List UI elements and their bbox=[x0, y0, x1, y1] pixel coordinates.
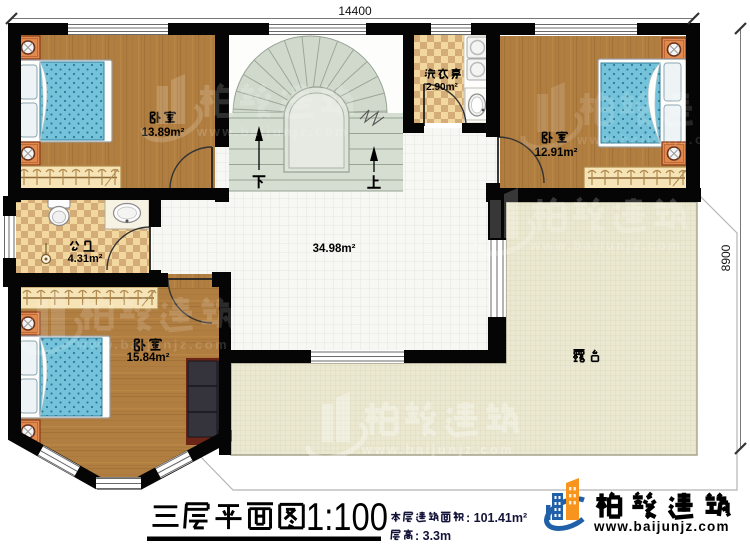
svg-text:14400: 14400 bbox=[338, 4, 372, 18]
svg-text:: 3.3m: : 3.3m bbox=[415, 529, 451, 543]
svg-text:34.98m²: 34.98m² bbox=[313, 243, 356, 255]
svg-text:2.90m²: 2.90m² bbox=[426, 82, 458, 93]
svg-text:15.84m²: 15.84m² bbox=[127, 352, 170, 364]
svg-text:1:100: 1:100 bbox=[306, 494, 388, 538]
svg-text:: 101.41m²: : 101.41m² bbox=[466, 511, 527, 525]
svg-text:8900: 8900 bbox=[719, 244, 733, 271]
svg-text:www.baijunjz.com: www.baijunjz.com bbox=[593, 519, 730, 534]
svg-text:4.31m²: 4.31m² bbox=[68, 253, 103, 265]
